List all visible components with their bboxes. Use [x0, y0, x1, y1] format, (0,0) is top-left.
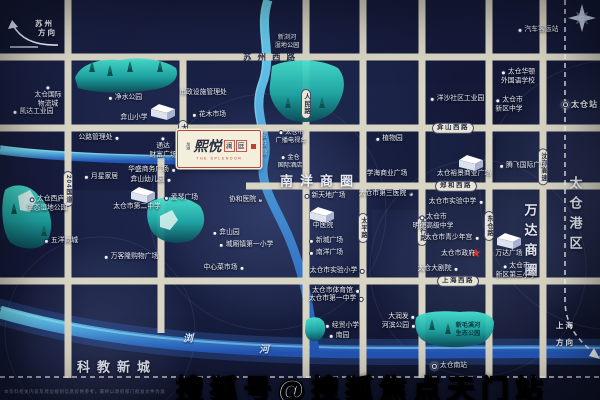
train-station-icon	[562, 102, 569, 109]
poi-text: 新区中学	[495, 106, 522, 114]
poi-dot-icon	[30, 197, 35, 202]
poi-line: 花木市场	[192, 111, 226, 119]
direction-shanghai: 上海 方向	[556, 322, 575, 348]
poi-dot-icon	[219, 243, 224, 248]
poi-label-12: 五洋商城	[44, 237, 78, 245]
poi-line: 太仓市体育馆	[312, 287, 360, 295]
poi-label-36: 太仓大剧院	[418, 265, 459, 273]
poi-text: 广播电视台	[276, 138, 307, 145]
poi-label-34: 太仓市政府	[441, 250, 475, 258]
district-label-3: 科教新城	[77, 357, 157, 376]
poi-label-8: 月星家居	[84, 173, 118, 181]
poi-dot-icon	[325, 324, 330, 329]
poi-line: 湿地公园	[275, 43, 300, 50]
poi-label-46: 太仓市广播电视台	[276, 129, 307, 145]
poi-dot-icon	[411, 315, 416, 320]
poi-line: 太仓裕景商业广场	[437, 170, 491, 178]
poi-line: 太仓西庐	[30, 195, 64, 203]
poi-label-44: 协和医院+	[229, 196, 263, 204]
poi-text: 洋沙社区工业园	[437, 95, 485, 103]
poi-dot-icon	[495, 98, 500, 103]
poi-line: 大润发	[388, 313, 415, 321]
poi-dot-icon	[164, 196, 169, 201]
poi-label-14: 太仓市第二中学	[113, 203, 161, 211]
poi-line: 中心菜市场	[204, 264, 245, 272]
direction-suzhou-line1: 苏州	[32, 20, 57, 28]
poi-text: 太仓华顿	[508, 68, 535, 76]
poi-label-52: 新浏河湿地公园	[275, 34, 300, 50]
poi-dot-icon	[104, 255, 109, 260]
poi-text: 财富广场	[149, 152, 176, 160]
poi-label-28: 新天地广场	[305, 192, 346, 200]
poi-line: 新浏河	[278, 34, 297, 41]
poi-dot-icon	[411, 324, 416, 329]
project-name-sub-char1: 澜	[224, 140, 235, 152]
poi-text: 南园	[336, 332, 350, 340]
poi-label-9: 华盛商务广场	[128, 166, 176, 174]
poi-label-39: 汽车客运站	[518, 26, 559, 34]
poi-line: 太仓市	[419, 213, 446, 221]
project-name-sub-char2: 庭	[236, 140, 247, 152]
poi-line: 南洋广场	[309, 249, 343, 257]
poi-dot-icon	[358, 297, 363, 302]
poi-text: 大润发	[388, 313, 408, 321]
poi-line: 太仓市第一中学	[309, 295, 364, 303]
poi-text: 花木市场	[199, 111, 226, 119]
poi-text: 通达	[156, 142, 170, 150]
poi-text: 太仓裕景商业广场	[437, 170, 491, 178]
poi-label-17: 弇山园	[212, 229, 239, 237]
poi-dot-icon	[478, 200, 483, 205]
poi-text: 弇山幼儿园	[131, 176, 165, 184]
poi-label-2: 净水公园	[108, 94, 142, 102]
poi-line: 太仓市实验中学	[429, 198, 484, 206]
poi-line: 太仓市	[278, 129, 304, 136]
poi-label-3: 弇山小学	[120, 114, 147, 122]
poi-line: 太仓市	[495, 96, 522, 104]
poi-text: 植物园	[382, 135, 402, 143]
poi-dot-icon	[419, 215, 424, 220]
poi-label-25: 太仓市新区第三小学	[496, 262, 537, 279]
hospital-icon: +	[258, 198, 263, 203]
poi-dot-icon	[518, 28, 523, 33]
poi-dot-icon	[355, 289, 360, 294]
poi-label-10: 弇山幼儿园	[131, 176, 172, 184]
poi-line: 经贸小学	[325, 322, 359, 330]
poi-label-1: 凯达工业园	[13, 108, 54, 116]
poi-label-4: 市政设施管理处	[179, 89, 227, 97]
poi-dot-icon	[502, 264, 507, 269]
poi-line: 新毛溪河	[456, 322, 481, 329]
poi-dot-icon	[305, 194, 310, 199]
poi-line: 太仓市第三医院+	[359, 190, 414, 198]
project-name-row: 龙湖 熙悦 澜庭	[183, 136, 256, 156]
poi-line: 太仓市政府	[441, 250, 475, 258]
poi-text: 太仓市实验中学	[429, 198, 477, 206]
poi-text: 城厢镇第一小学	[226, 241, 274, 249]
road-label-h-3: 上海西路	[437, 276, 479, 287]
road-label-v-6: 东仓路	[484, 211, 494, 241]
poi-dot-icon	[375, 137, 380, 142]
poi-label-43: 太仓站	[562, 100, 598, 110]
poi-label-50: 新毛溪河生态公园	[456, 322, 481, 338]
poi-text: 华盛商务广场	[128, 166, 169, 174]
poi-label-19: 南洋广场	[309, 249, 343, 257]
poi-text: 弇山小学	[120, 114, 147, 122]
poi-line: 弇山幼儿园	[131, 176, 172, 184]
poi-line: 外国语学校	[501, 78, 535, 86]
poi-label-29: 中医院	[313, 222, 333, 230]
poi-line: 五洋商城	[44, 237, 78, 245]
road-label-v-4: 太平路	[358, 213, 368, 243]
poi-label-47: 金仓国际酒店	[278, 154, 303, 170]
poi-line: 河滨公园	[382, 322, 416, 330]
poi-text: 市政设施管理处	[179, 89, 227, 97]
poi-line: 新城广场	[309, 237, 343, 245]
poi-text: 河滨公园	[382, 322, 409, 330]
poi-label-37: 腾飞国际广场	[499, 162, 547, 170]
poi-line: 新天地广场	[305, 192, 346, 200]
poi-dot-icon	[309, 251, 314, 256]
poi-dot-icon	[192, 113, 197, 118]
poi-label-7: 通达财富广场	[149, 136, 176, 159]
poi-label-49: 河滨公园	[382, 322, 416, 330]
district-label-0: 南洋商圈	[280, 171, 360, 190]
river-label-liuhe-0: 浏	[183, 330, 193, 345]
poi-line: 新区中学	[495, 106, 522, 114]
poi-text: 生态公园	[456, 331, 481, 338]
poi-dot-icon	[46, 85, 51, 90]
poi-text: 新区第三小学	[496, 272, 537, 280]
poi-label-6: 公路管理处	[79, 134, 120, 142]
poi-dot-icon	[499, 164, 504, 169]
poi-line: 太仓市	[502, 262, 529, 270]
poi-text: 经贸小学	[332, 322, 359, 330]
poi-text: 弇山园	[219, 229, 239, 237]
map-block	[372, 210, 418, 276]
poi-text: 南洋广场	[316, 249, 343, 257]
poi-line: 国际酒店	[278, 163, 303, 170]
poi-text: 生态湿地公园	[27, 205, 68, 213]
poi-dot-icon	[280, 155, 285, 160]
poi-dot-icon	[309, 239, 314, 244]
poi-line: 中医院	[313, 222, 333, 230]
park-blob	[415, 311, 494, 347]
poi-line: 生态公园	[456, 331, 481, 338]
poi-line: 金仓	[280, 154, 299, 161]
poi-text: 太仓国际	[34, 91, 61, 99]
poi-label-40: 洋沙社区工业园	[430, 95, 485, 103]
poi-label-48: 大润发	[388, 313, 415, 321]
poi-label-0: 太仓国际物流城	[34, 85, 61, 108]
poi-label-35: 万达广场	[495, 250, 522, 258]
poi-dot-icon	[44, 239, 49, 244]
poi-label-26: 太仓市第三医院+	[359, 190, 414, 198]
poi-line: 洋沙社区工业园	[430, 95, 485, 103]
poi-text: 汽车客运站	[525, 26, 559, 34]
project-tagline: THE SPLENDOR	[196, 157, 242, 161]
poi-dot-icon	[108, 96, 113, 101]
poi-text: 太仓站	[571, 100, 598, 110]
poi-label-20: 太仓市实验小学	[310, 267, 365, 275]
poi-text: 外国语学校	[501, 78, 535, 86]
poi-line: 爱琴广场	[164, 194, 198, 202]
poi-text: 爱琴广场	[171, 194, 198, 202]
poi-text: 太仓市第二中学	[113, 203, 161, 211]
poi-label-15: 中心菜市场	[204, 264, 245, 272]
poi-text: 太仓市	[285, 129, 304, 136]
disclaimer-text: 本资料相关内容及周边规划信息仅供参考，最终以政府部门批准文件为准	[4, 388, 165, 394]
poi-text: 公路管理处	[79, 134, 113, 142]
poi-line: 公路管理处	[79, 134, 120, 142]
poi-label-38: 太仓裕景商业广场	[437, 170, 491, 178]
poi-label-32: 太仓市明德高级中学	[413, 213, 454, 230]
park-blob	[305, 317, 325, 341]
poi-text: 太仓市政府	[441, 250, 475, 258]
poi-text: 湿地公园	[275, 43, 300, 50]
poi-line: 学海商业广场	[367, 170, 408, 178]
poi-label-42: 太仓市新区中学	[495, 96, 522, 113]
poi-label-11: 太仓西庐生态湿地公园	[27, 195, 68, 212]
poi-line: 华盛商务广场	[128, 166, 176, 174]
poi-text: 新毛溪河	[456, 322, 481, 329]
poi-label-24: 南园	[329, 332, 350, 340]
poi-line: 市政设施管理处	[179, 89, 227, 97]
red-seal-icon	[251, 144, 256, 149]
poi-line: 弇山园	[212, 229, 239, 237]
poi-dot-icon	[239, 266, 244, 271]
poi-dot-icon	[430, 97, 435, 102]
poi-line: 植物园	[375, 135, 402, 143]
poi-label-30: 植物园	[375, 135, 402, 143]
poi-dot-icon	[329, 334, 334, 339]
map-block	[496, 132, 539, 182]
poi-text: 新浏河	[278, 34, 297, 41]
poi-line: 协和医院+	[229, 196, 263, 204]
poi-line: 太仓华顿	[501, 68, 535, 76]
river-label-liuhe-1: 河	[259, 341, 269, 356]
poi-dot-icon	[114, 136, 119, 141]
poi-label-21: 太仓市体育馆	[312, 287, 360, 295]
poi-line: 万客隆购物广场	[104, 253, 159, 261]
direction-suzhou-line2: 方向	[38, 29, 57, 37]
poi-text: 太仓市	[426, 213, 446, 221]
poi-line: 弇山小学	[120, 114, 147, 122]
poi-text: 太仓市第三医院	[359, 190, 407, 198]
poi-line: 太仓大剧院	[418, 265, 459, 273]
poi-text: 国际酒店	[278, 163, 303, 170]
poi-text: 太仓西庐	[37, 195, 64, 203]
poi-dot-icon	[171, 168, 176, 173]
poi-text: 太仓市体育馆	[312, 287, 353, 295]
poi-text: 太仓市	[502, 96, 522, 104]
poi-line: 凯达工业园	[13, 108, 54, 116]
watermark-text: 搜狐号@搜狐焦点天门站	[176, 368, 549, 400]
poi-label-22: 太仓市第一中学	[309, 295, 364, 303]
poi-text: 金仓	[287, 154, 299, 161]
direction-suzhou: 苏州 方向	[32, 20, 57, 38]
poi-line: 太仓站	[562, 100, 598, 110]
project-logo-plaque: 龙湖 熙悦 澜庭 THE SPLENDOR	[177, 130, 261, 168]
project-brand: 龙湖	[184, 142, 190, 150]
poi-text: 万达广场	[495, 250, 522, 258]
poi-label-41: 太仓华顿外国语学校	[501, 68, 535, 85]
project-name-main: 熙悦	[194, 136, 222, 156]
poi-dot-icon	[501, 70, 506, 75]
poi-dot-icon	[13, 110, 18, 115]
road-label-h-1: 弇山西路	[432, 123, 474, 134]
poi-line: 净水公园	[108, 94, 142, 102]
poi-dot-icon	[166, 178, 171, 183]
poi-text: 五洋商城	[51, 237, 78, 245]
train-glyph	[564, 104, 567, 107]
direction-shanghai-line1: 上海	[556, 322, 575, 330]
road-label-h-2: 郑和西路	[435, 181, 477, 192]
poi-dot-icon	[278, 130, 283, 135]
poi-text: 净水公园	[115, 94, 142, 102]
project-name-sub: 澜庭	[224, 140, 247, 152]
poi-dot-icon	[453, 267, 458, 272]
poi-line: 城厢镇第一小学	[219, 241, 274, 249]
poi-label-18: 新城广场	[309, 237, 343, 245]
poi-text: 明德高级中学	[413, 223, 454, 231]
poi-label-16: 城厢镇第一小学	[219, 241, 274, 249]
poi-label-5: 花木市场	[192, 111, 226, 119]
poi-line: 南园	[329, 332, 350, 340]
poi-text: 太仓大剧院	[418, 265, 452, 273]
poi-line: 新区第三小学	[496, 272, 537, 280]
poi-text: 凯达工业园	[20, 108, 54, 116]
poi-label-27: 学海商业广场	[367, 170, 408, 178]
road-label-v-3: 人民路	[301, 89, 311, 119]
poi-text: 腾飞国际广场	[506, 162, 547, 170]
poi-dot-icon	[359, 269, 364, 274]
poi-line: 万达广场	[495, 250, 522, 258]
real-estate-location-map: ★ 苏州西路弇山西路郑和西路上海西路204国道太沙路人民路太平路先行路东仓路沈海…	[0, 0, 600, 400]
direction-shanghai-line2: 方向	[556, 339, 575, 347]
compass-icon	[568, 4, 596, 32]
poi-text: 协和医院	[229, 196, 256, 204]
poi-label-45: 爱琴广场	[164, 194, 198, 202]
poi-line: 月星家居	[84, 173, 118, 181]
poi-dot-icon	[161, 136, 166, 141]
poi-line: 腾飞国际广场	[499, 162, 547, 170]
poi-text: 新城广场	[316, 237, 343, 245]
poi-text: 万客隆购物广场	[111, 253, 159, 261]
poi-line: 太仓国际	[34, 91, 61, 99]
poi-text: 中心菜市场	[204, 264, 238, 272]
poi-dot-icon	[474, 236, 479, 241]
poi-text: 月星家居	[91, 173, 118, 181]
hospital-icon: +	[408, 192, 413, 197]
poi-dot-icon	[84, 175, 89, 180]
poi-text: 太仓市第一中学	[309, 295, 357, 303]
poi-text: 太仓市实验小学	[310, 267, 358, 275]
district-label-2: 太仓港区	[566, 176, 585, 256]
poi-text: 太仓市青少年宫	[425, 234, 473, 242]
poi-line: 生态湿地公园	[27, 205, 68, 213]
poi-label-33: 太仓市青少年宫	[425, 234, 480, 242]
poi-line: 通达	[156, 142, 170, 150]
poi-text: 中医院	[313, 222, 333, 230]
poi-label-31: 太仓市实验中学	[429, 198, 484, 206]
poi-text: 太仓市	[509, 262, 529, 270]
poi-label-23: 经贸小学	[325, 322, 359, 330]
poi-line: 太仓市实验小学	[310, 267, 365, 275]
poi-line: 财富广场	[149, 152, 176, 160]
poi-line: 太仓市青少年宫	[425, 234, 480, 242]
poi-line: 太仓市第二中学	[113, 203, 161, 211]
road-label-h-0: 苏州西路	[243, 51, 301, 63]
poi-line: 汽车客运站	[518, 26, 559, 34]
poi-line: 广播电视台	[276, 138, 307, 145]
poi-text: 学海商业广场	[367, 170, 408, 178]
poi-line: 明德高级中学	[413, 223, 454, 231]
poi-label-13: 万客隆购物广场	[104, 253, 159, 261]
poi-dot-icon	[212, 231, 217, 236]
poi-text: 新天地广场	[312, 192, 346, 200]
